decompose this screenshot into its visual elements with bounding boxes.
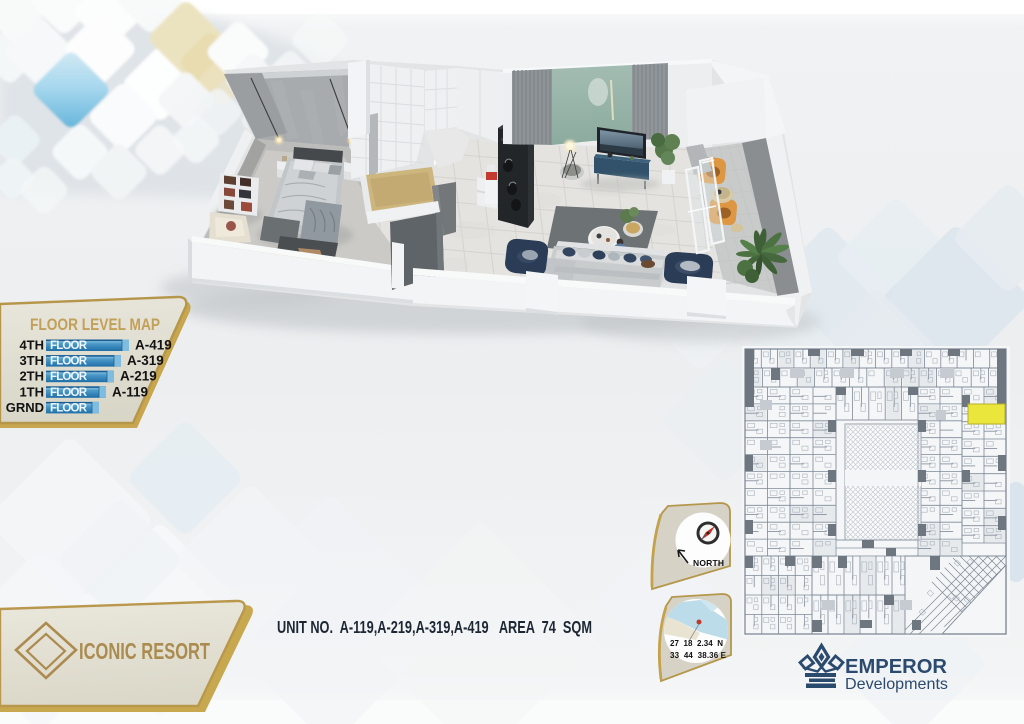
- svg-text:A-119: A-119: [112, 384, 148, 399]
- svg-text:GRND: GRND: [6, 400, 44, 415]
- svg-text:A-219: A-219: [120, 369, 157, 384]
- svg-text:27 18 2.34 N: 27 18 2.34 N: [670, 639, 723, 648]
- svg-text:FLOOR: FLOOR: [50, 340, 88, 352]
- svg-text:2TH: 2TH: [19, 369, 44, 384]
- svg-text:UNIT NO. A-119,A-219,A-319,A-: UNIT NO. A-119,A-219,A-319,A-419 AREA 74…: [277, 617, 592, 637]
- svg-text:1TH: 1TH: [19, 384, 44, 399]
- svg-text:FLOOR: FLOOR: [50, 387, 88, 399]
- svg-text:ICONIC RESORT: ICONIC RESORT: [79, 638, 210, 664]
- svg-text:FLOOR: FLOOR: [50, 356, 88, 368]
- svg-text:3TH: 3TH: [19, 353, 44, 368]
- svg-text:FLOOR: FLOOR: [50, 402, 88, 414]
- svg-text:FLOOR LEVEL MAP: FLOOR LEVEL MAP: [30, 315, 160, 334]
- svg-text:EMPEROR: EMPEROR: [845, 656, 948, 678]
- svg-text:FLOOR: FLOOR: [50, 371, 88, 383]
- svg-text:Developments: Developments: [845, 676, 948, 693]
- svg-text:4TH: 4TH: [19, 338, 44, 353]
- svg-text:33 44 38.36 E: 33 44 38.36 E: [670, 651, 727, 660]
- svg-text:A-319: A-319: [127, 353, 164, 368]
- svg-text:A-419: A-419: [135, 338, 172, 353]
- svg-text:NORTH: NORTH: [693, 558, 724, 568]
